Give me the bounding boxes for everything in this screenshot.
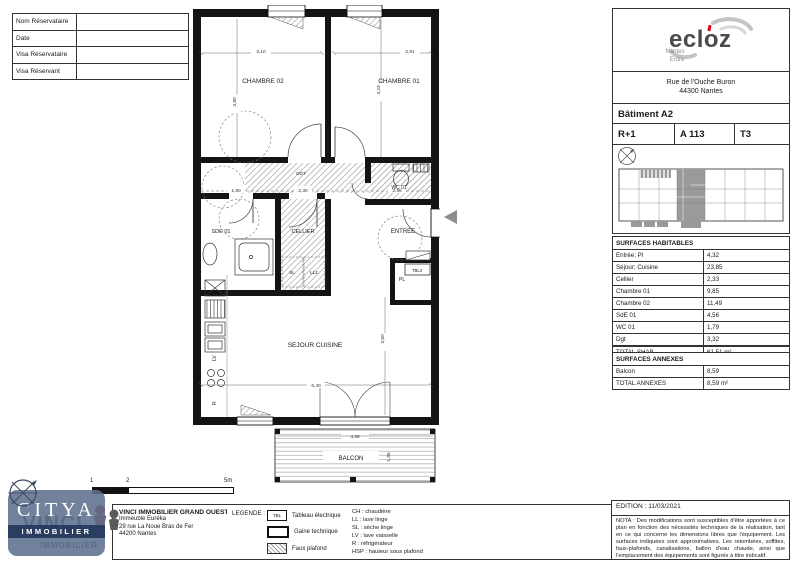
- key-plan: [613, 145, 789, 232]
- dim-balcon-width: 4,39: [350, 434, 360, 440]
- abbreviations-box: CH : chaudière LL : lave linge SL : sèch…: [344, 504, 613, 560]
- room-label-balcon: BALCON: [339, 456, 364, 462]
- abbr-ch: CH : chaudière: [352, 508, 612, 516]
- abbr-hsp: HSP : hauteur sous plafond: [352, 548, 612, 556]
- legend-item: Gaine technique: [267, 526, 341, 538]
- lot-cell: A 113: [675, 124, 735, 144]
- brand-region-line2: Erdre: [657, 57, 697, 64]
- closet-label-pl: PL: [399, 277, 405, 283]
- brand-box: ecloz Nantes Erdre: [613, 9, 789, 72]
- compass-icon: [619, 148, 636, 165]
- table-row: Date: [13, 31, 188, 48]
- room-label-dgt: DGT: [296, 171, 306, 176]
- room-label-chambre-02: CHAMBRE 02: [242, 78, 284, 85]
- nota-text: NOTA : Des modifications sont susceptibl…: [612, 516, 789, 563]
- dim-chambre01-width: 2,91: [405, 49, 415, 55]
- entrance-arrow-icon: [444, 210, 457, 224]
- appliance-label-lv: LV: [212, 355, 218, 361]
- reservation-row-label: Visa Réservataire: [13, 47, 77, 63]
- reservation-row-value: [77, 31, 188, 47]
- table-row: Balcon8,59: [613, 366, 789, 378]
- compass-icon: [4, 474, 42, 512]
- dim-dgt-width: 2,30: [298, 188, 308, 194]
- surfaces-annexes-table: SURFACES ANNEXES Balcon8,59 TOTAL ANNEXE…: [612, 352, 790, 390]
- address-line1: Rue de l'Ouche Buron: [613, 72, 789, 87]
- dim-sejour-height: 3,60: [380, 334, 386, 344]
- scale-bar-track: [92, 487, 234, 494]
- table-row: Chambre 0211,49: [613, 298, 789, 310]
- reservation-row-value: [77, 47, 188, 63]
- table-row: Nom Réservataire: [13, 14, 188, 31]
- room-label-sejour: SEJOUR CUISINE: [288, 342, 343, 349]
- table-row: WC 011,79: [613, 322, 789, 334]
- sde-fixtures: [203, 239, 273, 275]
- address-line2: 44300 Nantes: [613, 87, 789, 96]
- table-row: Dgt3,32: [613, 334, 789, 346]
- edition-nota-box: EDITION : 11/03/2021 NOTA : Des modifica…: [611, 500, 790, 560]
- faux-plafond-icon: [267, 543, 287, 554]
- surfaces-habitables-title: SURFACES HABITABLES: [613, 237, 789, 250]
- appliance-label-r: R: [212, 401, 218, 405]
- reservation-row-value: [77, 14, 188, 30]
- building-outline: [619, 169, 783, 228]
- room-label-chambre-01: CHAMBRE 01: [378, 78, 420, 85]
- abbr-lv: LV : lave vaisselle: [352, 532, 612, 540]
- legend-item: TBL Tableau électrique: [267, 510, 341, 521]
- scale-label-1: 1: [90, 478, 93, 484]
- scale-label-5m: 5m: [224, 478, 232, 484]
- surfaces-habitables-table: SURFACES HABITABLES Entrée; Pl4,32 Séjou…: [612, 236, 790, 359]
- scale-label-2: 2: [126, 478, 129, 484]
- vinci-line1: Immeuble Euréka: [119, 516, 229, 524]
- reservation-row-value: [77, 64, 188, 80]
- title-block: ecloz Nantes Erdre Rue de l'Ouche Buron …: [612, 8, 790, 234]
- window-sejour: [237, 405, 273, 425]
- gaine-technique-icon: [267, 526, 289, 538]
- legend-item: Faux plafond: [267, 543, 341, 554]
- reservation-table: Nom Réservataire Date Visa Réservataire …: [12, 13, 189, 80]
- abbr-ll: LL : lave linge: [352, 516, 612, 524]
- reservation-row-label: Nom Réservataire: [13, 14, 77, 30]
- reservation-row-label: Visa Réservant: [13, 64, 77, 80]
- table-row: Cellier2,33: [613, 274, 789, 286]
- dim-balcon-depth: 1,95: [386, 452, 392, 462]
- window-chambre-02: [268, 5, 305, 29]
- appliance-label-sl: SL: [289, 270, 295, 276]
- dim-chambre02-height: 3,80: [232, 97, 238, 107]
- legend-item-label: Faux plafond: [292, 546, 327, 552]
- table-total-row: TOTAL ANNEXES8,59 m²: [613, 378, 789, 389]
- room-label-cellier: CELLIER: [292, 229, 315, 235]
- appliance-label-ll: LL1: [310, 270, 318, 276]
- batiment-label: Bâtiment A2: [613, 104, 789, 120]
- vinci-address-box: VINCI IMMOBILIER GRAND OUEST Immeuble Eu…: [112, 504, 230, 560]
- abbr-r: R : réfrigérateur: [352, 540, 612, 548]
- reservation-row-label: Date: [13, 31, 77, 47]
- abbr-sl: SL : sèche linge: [352, 524, 612, 532]
- table-row: Séjour; Cuisine23,85: [613, 262, 789, 274]
- edition-label: EDITION : 11/03/2021: [612, 501, 789, 516]
- legend-title: LEGENDE :: [232, 510, 265, 517]
- lot-row: R+1 A 113 T3: [613, 124, 789, 145]
- room-label-sde: SDE 01: [212, 229, 231, 235]
- etage-cell: R+1: [613, 124, 675, 144]
- kitchen-fixtures: [205, 275, 227, 417]
- dim-sde-width: 1,90: [231, 188, 241, 194]
- vinci-line3: 44200 Nantes: [119, 531, 229, 539]
- room-label-entree: ENTREE: [391, 229, 415, 235]
- vinci-line2: 29 rue La Noue Bras de Fer: [119, 524, 229, 532]
- dim-chambre02-width: 3,10: [256, 49, 266, 55]
- dim-sejour-width: 6,40: [311, 383, 321, 389]
- table-row: Entrée; Pl4,32: [613, 250, 789, 262]
- brand-region-line1: Nantes: [655, 49, 695, 56]
- dim-chambre01-height: 3,23: [376, 85, 382, 95]
- tableau-electrique-icon: TBL: [267, 510, 287, 521]
- table-row: Visa Réservant: [13, 64, 188, 80]
- tbl-label: TBL3: [412, 268, 423, 273]
- citya-logo-subtext: IMMOBILIER: [8, 525, 105, 538]
- vinci-title: VINCI IMMOBILIER GRAND OUEST: [119, 509, 229, 516]
- batiment-box: Bâtiment A2: [613, 104, 789, 124]
- legend-item-label: Tableau électrique: [292, 513, 341, 519]
- legend-box: LEGENDE : TBL Tableau électrique Gaine t…: [227, 504, 346, 560]
- legend-item-label: Gaine technique: [294, 529, 338, 535]
- scale-bar: 1 2 5m: [88, 478, 238, 494]
- table-row: Visa Réservataire: [13, 47, 188, 64]
- floor-plan: CHAMBRE 02 CHAMBRE 01 WC 01 SDE 01 CELLI…: [185, 5, 475, 497]
- address-box: Rue de l'Ouche Buron 44300 Nantes: [613, 72, 789, 104]
- dim-entree-width: 2,96: [392, 188, 402, 194]
- french-door-sejour: [320, 382, 390, 425]
- table-row: Chambre 019,85: [613, 286, 789, 298]
- window-chambre-01: [347, 5, 382, 29]
- document-page: Nom Réservataire Date Visa Réservataire …: [0, 0, 800, 565]
- surfaces-annexes-title: SURFACES ANNEXES: [613, 353, 789, 366]
- table-row: SdE 014,56: [613, 310, 789, 322]
- type-cell: T3: [735, 124, 789, 144]
